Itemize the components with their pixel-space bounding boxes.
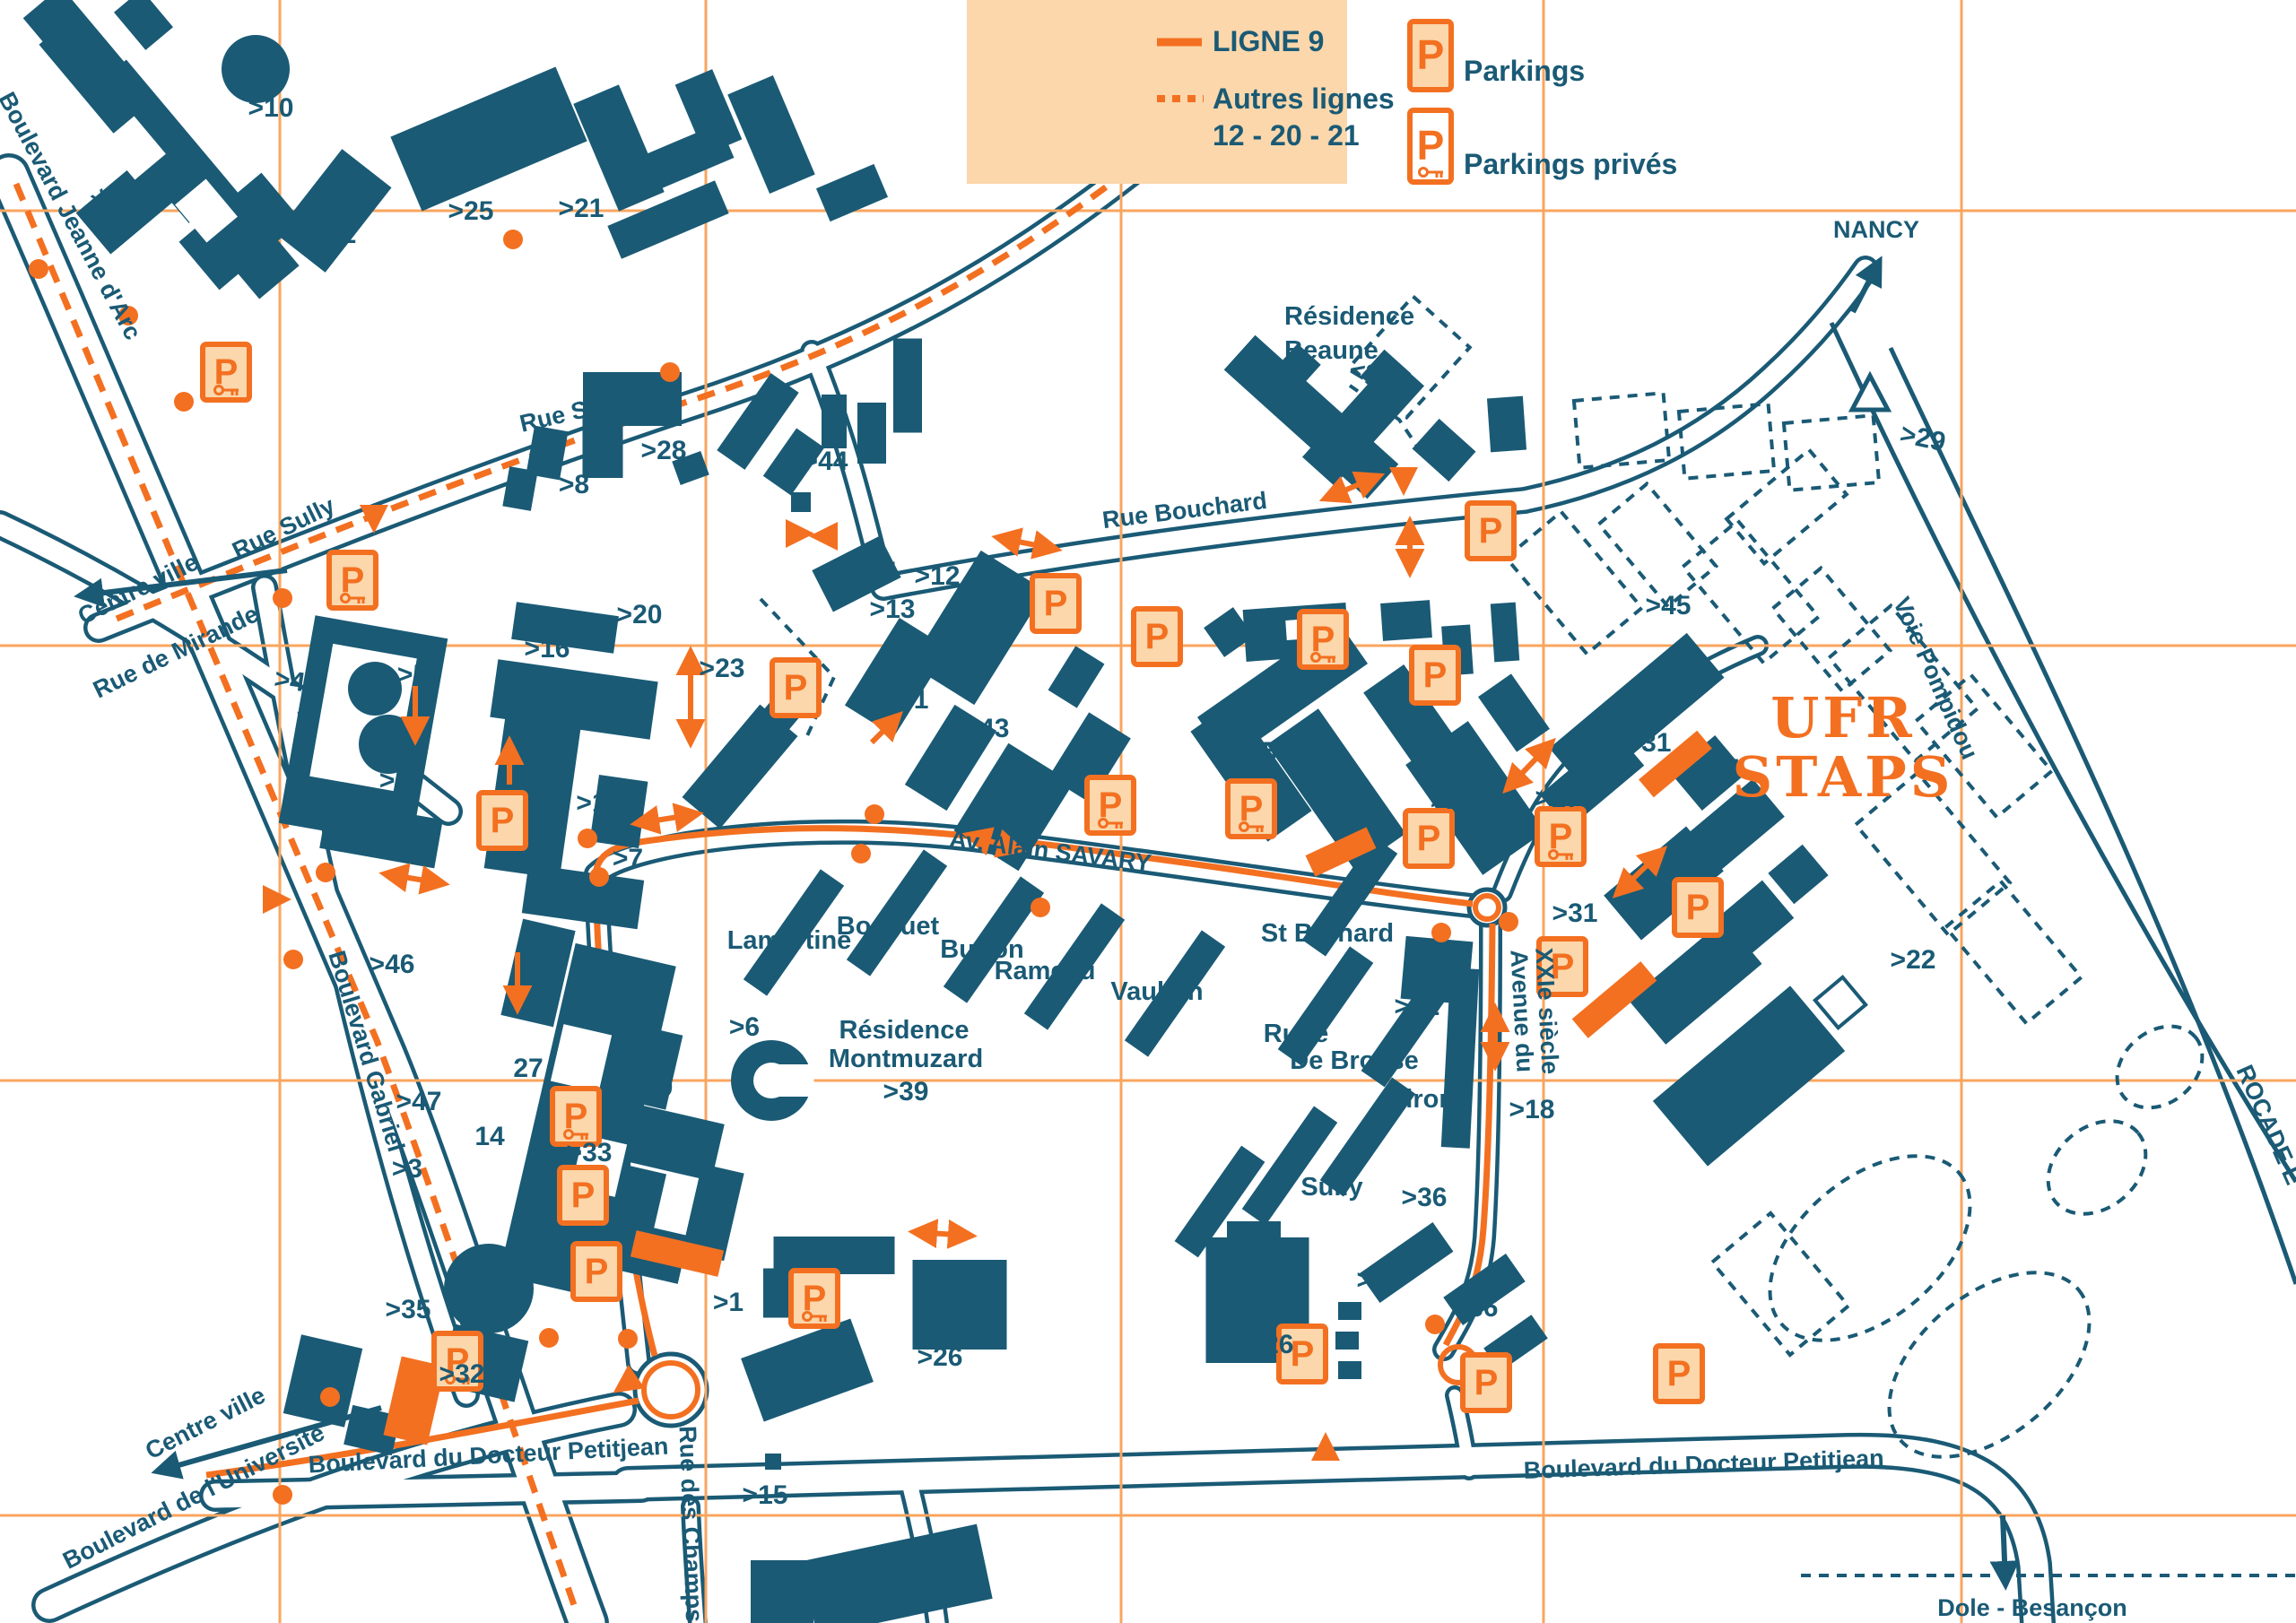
num-label: >25 [448,196,494,226]
parking-letter: P [1423,655,1448,695]
building [1768,845,1828,905]
bus-stop-dot [283,950,303,969]
num-label: >31 [1552,898,1598,928]
parking-icon: P [1410,22,1451,90]
legend-autres_lignes_label: Autres lignes [1213,82,1395,115]
building-round [444,1244,534,1333]
bus-stop-dot [851,844,871,864]
parking-prive-icon: P [791,1271,838,1326]
dashed-field [1506,512,1641,655]
building [816,164,888,221]
num-label: >18 [1509,1095,1555,1124]
parking-icon: P [1463,1355,1509,1410]
route-direction-triangle [809,522,838,551]
num-label: >24 [1323,799,1369,829]
num-label: >50 [1247,737,1292,767]
parking-icon: P [479,793,526,848]
place-label: Rameau [995,957,1096,985]
bus-stop-dot [316,863,335,882]
parking-prive-icon: P [552,1089,599,1144]
num-label: >29 [1898,419,1949,457]
num-label: >26 [1248,1330,1294,1359]
num-label: >32 [439,1359,485,1389]
place-label: Vauban [1110,977,1203,1006]
parking-icon: P [772,660,819,716]
bus-stop-dot [1031,898,1050,917]
bus-stop-dot [503,230,523,249]
dashed-field [1773,568,1891,691]
building [1338,1361,1361,1379]
num-label: >49 [273,664,322,700]
bus-stop-dot [578,829,597,848]
num-label: >39 [883,1077,929,1107]
num-label: >3 [392,1154,422,1184]
parking-letter: P [1145,617,1170,656]
parking-icon: P [1412,647,1458,703]
parking-prive-icon: P [1537,809,1584,864]
parking-letter: P [1417,819,1441,858]
legend: LIGNE 9Autres lignes12 - 20 - 21PPParkin… [967,0,1677,184]
num-label: >52 [1395,992,1440,1021]
num-label: >36 [1402,1183,1448,1212]
num-label: >1 [713,1288,744,1317]
building [283,1334,362,1427]
num-label: >47 [396,1087,442,1116]
num-label: >23 [700,654,745,683]
ufr-staps-label: UFR [1770,685,1916,751]
num-label: >41 [883,685,929,715]
parking-letter: P [571,1176,596,1215]
building [1413,419,1476,482]
building [727,75,815,194]
building [583,415,623,478]
two-way-arrow [917,1232,969,1236]
road [1525,269,1865,500]
parking-icon: P [560,1167,606,1223]
bus-stop-dot [174,392,194,412]
parking-icon: P [1674,880,1721,935]
num-label: >46 [370,950,415,979]
place-label: Lamartine [727,926,852,955]
two-way-arrow [639,814,695,823]
parking-icon: P [1656,1346,1702,1402]
bus-stop-dot [273,1485,292,1505]
route-direction-triangle [263,885,291,914]
building [390,67,587,212]
bus-stop-dot [660,362,680,382]
building [522,864,644,930]
num-label: >11 [576,788,620,818]
bus-stop-dot [273,588,292,608]
num-label: >28 [641,436,687,465]
num-label: >4 [379,766,411,795]
bus-stop-dot [320,1387,340,1407]
campus-map: PPPPPPPPPPPPPPPPPPPPPPPBoulevard Jeanne … [0,0,2296,1623]
num-label: >45 [1646,591,1692,621]
parking-prive-icon: P [203,344,249,400]
num-label: >6 [729,1012,760,1042]
place-label: De Brosse [1290,1046,1418,1075]
building [1380,600,1432,641]
place-label: Montmuzard [829,1045,983,1073]
building [857,403,886,464]
parking-prive-icon: P [1410,110,1451,182]
highway-line [1891,348,2296,1284]
bus-stop-dot [618,1329,638,1349]
building [1478,673,1550,751]
place-label: St Bernard [1261,919,1394,948]
building-outline [1815,977,1865,1028]
parking-prive-icon: P [1300,612,1346,667]
parking-letter: P [585,1252,609,1291]
parking-prive-icon: P [329,552,376,608]
building [791,492,811,512]
num-label: >12 [915,561,961,591]
num-label: >36 [1357,1265,1403,1295]
parking-letter: P [784,668,808,707]
building [1487,396,1526,453]
road-surface [1525,269,1865,500]
direction-arrow [2003,1515,2005,1582]
building [1338,1302,1361,1320]
num-label: >17 [1535,784,1581,813]
legend-ligne9_label: LIGNE 9 [1213,25,1324,57]
num-label: >26 [918,1342,963,1372]
building [893,339,922,433]
building [763,1269,788,1318]
parking-letter: P [1474,1363,1499,1402]
dashed-field [1712,1213,1848,1355]
building-round [348,662,402,716]
building [1048,646,1105,707]
num-label: >34 [852,557,898,586]
dashed-field [2030,1102,2164,1233]
building [1227,1221,1281,1257]
num-label: >44 [803,447,848,476]
num-label: >7 [613,844,643,873]
parking-icon: P [1467,503,1514,559]
building [1335,1332,1359,1350]
parking-letter: P [1479,511,1503,551]
num-label: >31 [1626,728,1672,758]
num-label: >42 [311,220,357,249]
parking-icon: P [573,1244,620,1299]
building [765,1454,781,1470]
legend-parkings-label: Parkings [1464,55,1585,87]
legend-parkings-prives-label: Parkings privés [1464,148,1677,180]
building [741,1319,874,1422]
num-label: >21 [559,194,604,223]
two-way-arrow [1000,538,1054,549]
building [751,1560,813,1623]
parking-icon: P [1134,609,1180,664]
num-label: >33 [567,1138,613,1167]
dest-label: Dole - Besançon [1937,1594,2127,1621]
legend-autres_lignes_numbers: 12 - 20 - 21 [1213,119,1360,152]
route-direction-triangle [1311,1432,1340,1461]
parking-letter: P [1417,31,1445,78]
place-label: Piron [1388,1085,1455,1114]
dest-label: NANCY [1833,216,1919,243]
bus-stop-dot [865,804,884,824]
place-label: Résidence [1284,302,1414,331]
bus-stop-dot [589,867,609,887]
num-label: 27 [513,1054,543,1083]
place-label: Rude [1264,1020,1329,1048]
num-label: >36 [1453,1293,1499,1323]
building-gap [774,1064,814,1097]
parking-letter: P [1291,1334,1315,1374]
num-label: >5 [397,660,428,690]
num-label: >15 [743,1480,788,1510]
two-way-arrow [387,874,441,883]
parking-prive-icon: P [1087,777,1134,833]
num-label: >8 [559,470,589,499]
building [1491,603,1519,663]
parking-prive-icon: P [1228,781,1274,837]
num-label: >35 [386,1295,431,1324]
building [913,1260,1007,1350]
bus-stop-dot [539,1328,559,1348]
num-label: >22 [1891,945,1936,975]
bus-stop-dot [1431,923,1451,942]
place-label: Bossuet [837,912,940,941]
building [484,699,584,879]
street-label: Rue des Champs Pr [674,1426,709,1623]
num-label: >30 [628,1072,674,1102]
route-direction-triangle [1389,467,1418,496]
parking-letter: P [1044,584,1068,623]
parking-letter: P [1686,888,1710,927]
num-label: >43 [964,714,1010,743]
place-label: Sully [1300,1173,1362,1202]
building [822,395,847,448]
building [801,1524,992,1623]
buildings-layer [23,0,1865,1623]
parking-icon: P [1032,576,1079,631]
parking-letter: P [1417,122,1445,169]
bus-stop-dot [1425,1315,1445,1334]
bus-stop-dot [1499,912,1518,932]
parking-letter: P [1667,1354,1692,1393]
num-label: 14 [474,1122,505,1151]
num-label: >10 [248,93,294,123]
building [114,0,173,50]
num-label: >13 [870,595,916,624]
num-label: >2 [1431,785,1461,815]
ufr-staps-label: STAPS [1732,744,1953,810]
dashed-field [1945,881,2081,1024]
parking-icon: P [1405,811,1452,866]
num-label: >20 [617,600,663,629]
num-label: >19 [1668,843,1714,872]
parking-letter: P [491,801,515,840]
route-direction-triangle [786,519,814,548]
num-label: >16 [525,634,570,664]
place-label: Résidence [839,1016,969,1045]
bus-stop-dot [29,259,48,279]
